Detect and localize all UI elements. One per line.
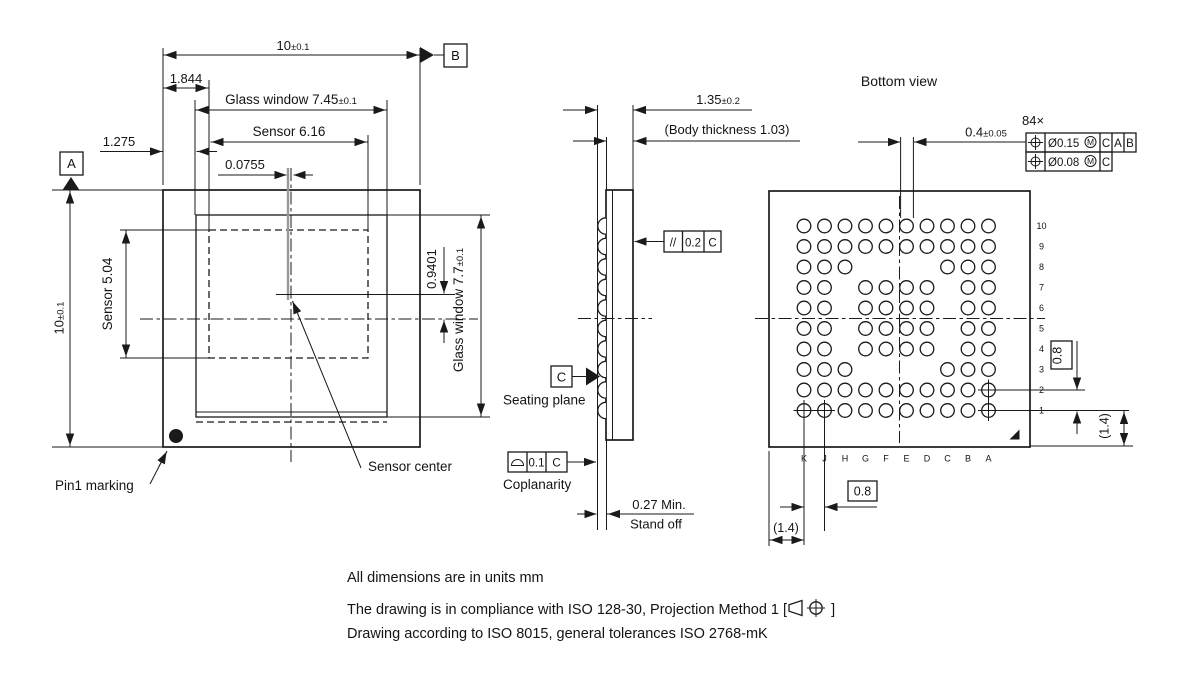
row-label-4: 4 <box>1039 344 1044 354</box>
ball-B2 <box>961 383 975 397</box>
dim-thickness: 1.35±0.2 <box>696 92 740 107</box>
parallelism-symbol: // <box>670 238 677 250</box>
row-label-7: 7 <box>1039 283 1044 293</box>
svg-text:0.2: 0.2 <box>685 238 701 250</box>
col-label-F: F <box>883 454 889 464</box>
standoff-label: Stand off <box>630 517 682 532</box>
ball-K6 <box>797 301 811 315</box>
row-label-5: 5 <box>1039 324 1044 334</box>
dim-top-width: 10±0.1 <box>277 38 310 53</box>
dim-ball-dia: 0.4±0.05 <box>965 125 1007 140</box>
ball-A10 <box>982 219 996 233</box>
dim-00755: 0.0755 <box>225 157 265 172</box>
first-angle-projection-icon <box>787 598 831 622</box>
ball-D6 <box>920 301 934 315</box>
datum-a-triangle <box>63 177 80 190</box>
col-label-C: C <box>944 454 951 464</box>
ball-J9 <box>818 240 832 254</box>
ball-B9 <box>961 240 975 254</box>
dim-col-pitch: 0.8 <box>854 485 871 499</box>
package-drawing: 10±0.1 B A 1.844 Glass window 7.45±0.1 S… <box>0 0 1200 675</box>
ball-F7 <box>879 281 893 295</box>
row-label-1: 1 <box>1039 406 1044 416</box>
col-label-K: K <box>801 454 807 464</box>
side-ball-4 <box>598 341 606 357</box>
dim-sensor-width: Sensor 6.16 <box>253 124 326 139</box>
surface-profile-icon <box>512 460 524 466</box>
pin1-label: Pin1 marking <box>55 478 134 493</box>
ball-G6 <box>859 301 873 315</box>
ball-J3 <box>818 363 832 377</box>
ball-D10 <box>920 219 934 233</box>
svg-text:A: A <box>1114 138 1122 150</box>
position-fcf-1: Ø0.15 M C A B <box>1026 133 1136 152</box>
ball-C2 <box>941 383 955 397</box>
side-ball-9 <box>598 238 606 254</box>
standoff-value: 0.27 Min. <box>632 497 685 512</box>
ball-B1 <box>961 404 975 418</box>
ball-G9 <box>859 240 873 254</box>
ball-B10 <box>961 219 975 233</box>
ball-D4 <box>920 342 934 356</box>
pin1-dot <box>169 429 183 443</box>
dim-col-edge: (1.4) <box>773 521 799 535</box>
ball-J2 <box>818 383 832 397</box>
ball-K4 <box>797 342 811 356</box>
side-ball-1 <box>598 402 606 418</box>
note-units: All dimensions are in units mm <box>347 570 544 586</box>
ball-H10 <box>838 219 852 233</box>
svg-text:B: B <box>1126 138 1134 150</box>
ball-D9 <box>920 240 934 254</box>
ball-H1 <box>838 404 852 418</box>
ball-H3 <box>838 363 852 377</box>
row-label-8: 8 <box>1039 262 1044 272</box>
ball-G10 <box>859 219 873 233</box>
ball-D5 <box>920 322 934 336</box>
col-label-J: J <box>822 454 827 464</box>
ball-F4 <box>879 342 893 356</box>
ball-E6 <box>900 301 914 315</box>
a1-corner-marker <box>1010 430 1020 440</box>
ball-F10 <box>879 219 893 233</box>
dim-glass-height: Glass window 7.7±0.1 <box>451 248 466 372</box>
ball-G7 <box>859 281 873 295</box>
dim-row-edge: (1.4) <box>1098 413 1112 439</box>
datum-b-label: B <box>451 48 460 63</box>
ball-F9 <box>879 240 893 254</box>
ball-K9 <box>797 240 811 254</box>
ball-K10 <box>797 219 811 233</box>
ball-E5 <box>900 322 914 336</box>
ball-H2 <box>838 383 852 397</box>
col-label-B: B <box>965 454 971 464</box>
ball-B7 <box>961 281 975 295</box>
row-label-10: 10 <box>1036 221 1046 231</box>
mmc-icon: M <box>1085 156 1096 167</box>
ball-B5 <box>961 322 975 336</box>
ball-A6 <box>982 301 996 315</box>
dim-body-thickness: (Body thickness 1.03) <box>664 122 789 137</box>
seating-plane-label: Seating plane <box>503 393 586 408</box>
dim-1844: 1.844 <box>170 71 203 86</box>
ball-A3 <box>982 363 996 377</box>
top-view: 10±0.1 B A 1.844 Glass window 7.45±0.1 S… <box>52 38 491 493</box>
side-ball-10 <box>598 218 606 234</box>
datum-c-label: C <box>557 370 566 385</box>
ball-E1 <box>900 404 914 418</box>
note-projection: The drawing is in compliance with ISO 12… <box>347 598 835 622</box>
svg-text:C: C <box>1102 157 1110 169</box>
ball-B3 <box>961 363 975 377</box>
ball-E4 <box>900 342 914 356</box>
side-view: 1.35±0.2 (Body thickness 1.03) // 0.2 C … <box>503 92 800 532</box>
ball-K7 <box>797 281 811 295</box>
ball-A5 <box>982 322 996 336</box>
col-label-G: G <box>862 454 869 464</box>
sensor-center-leader <box>293 301 362 468</box>
ball-K5 <box>797 322 811 336</box>
ball-J6 <box>818 301 832 315</box>
dim-1275: 1.275 <box>103 134 136 149</box>
col-label-D: D <box>924 454 931 464</box>
svg-text:0.1: 0.1 <box>529 458 545 470</box>
ball-B4 <box>961 342 975 356</box>
ball-G2 <box>859 383 873 397</box>
ball-E10 <box>900 219 914 233</box>
dim-glass-width: Glass window 7.45±0.1 <box>225 92 357 107</box>
ball-K2 <box>797 383 811 397</box>
ball-D2 <box>920 383 934 397</box>
position-fcf-2: Ø0.08 M C <box>1026 152 1112 171</box>
row-label-3: 3 <box>1039 365 1044 375</box>
ball-J5 <box>818 322 832 336</box>
position-icon <box>1028 154 1043 169</box>
dim-left-height: 10±0.1 <box>52 302 67 335</box>
col-label-A: A <box>985 454 991 464</box>
col-label-H: H <box>842 454 849 464</box>
side-ball-5 <box>598 320 606 336</box>
ball-D7 <box>920 281 934 295</box>
datum-b-triangle <box>420 47 434 63</box>
svg-text:C: C <box>708 238 716 250</box>
datum-a-label: A <box>67 156 76 171</box>
drawing-canvas: 10±0.1 B A 1.844 Glass window 7.45±0.1 S… <box>0 0 1200 675</box>
col-label-E: E <box>903 454 909 464</box>
ball-K8 <box>797 260 811 274</box>
ball-A4 <box>982 342 996 356</box>
position-icon <box>1028 135 1043 150</box>
side-body-outline <box>606 190 633 440</box>
ball-F5 <box>879 322 893 336</box>
ball-A7 <box>982 281 996 295</box>
side-ball-3 <box>598 361 606 377</box>
ball-G4 <box>859 342 873 356</box>
sensor-center-label: Sensor center <box>368 459 453 474</box>
ball-E2 <box>900 383 914 397</box>
side-ball-6 <box>598 300 606 316</box>
bottom-view-title: Bottom view <box>861 73 938 89</box>
ball-G5 <box>859 322 873 336</box>
coplanarity-label: Coplanarity <box>503 477 572 492</box>
mmc-icon: M <box>1085 137 1096 148</box>
ball-F1 <box>879 404 893 418</box>
svg-text:C: C <box>552 458 560 470</box>
ball-J4 <box>818 342 832 356</box>
ball-J7 <box>818 281 832 295</box>
ball-H9 <box>838 240 852 254</box>
ball-B8 <box>961 260 975 274</box>
ball-A9 <box>982 240 996 254</box>
ball-J10 <box>818 219 832 233</box>
ball-C8 <box>941 260 955 274</box>
ball-K3 <box>797 363 811 377</box>
ball-J8 <box>818 260 832 274</box>
note-tolerances: Drawing according to ISO 8015, general t… <box>347 626 768 642</box>
ball-C10 <box>941 219 955 233</box>
ball-B6 <box>961 301 975 315</box>
svg-text:Ø0.15: Ø0.15 <box>1048 138 1079 150</box>
dim-row-pitch: 0.8 <box>1051 347 1065 364</box>
column-labels: KJHGFEDCBA <box>801 454 992 464</box>
row-label-9: 9 <box>1039 242 1044 252</box>
ball-G1 <box>859 404 873 418</box>
bottom-view: Bottom view 0.4±0.05 84× Ø0.15 M <box>755 73 1136 546</box>
ball-C3 <box>941 363 955 377</box>
dim-sensor-height: Sensor 5.04 <box>100 257 115 330</box>
row-label-2: 2 <box>1039 385 1044 395</box>
ball-D1 <box>920 404 934 418</box>
ball-count: 84× <box>1022 113 1044 128</box>
row-label-6: 6 <box>1039 303 1044 313</box>
side-ball-7 <box>598 279 606 295</box>
ball-F6 <box>879 301 893 315</box>
svg-text:C: C <box>1102 138 1110 150</box>
svg-text:M: M <box>1087 137 1094 147</box>
ball-A8 <box>982 260 996 274</box>
dim-09401: 0.9401 <box>424 249 439 289</box>
svg-text:M: M <box>1087 156 1094 166</box>
ball-E7 <box>900 281 914 295</box>
side-ball-8 <box>598 259 606 275</box>
ball-C1 <box>941 404 955 418</box>
ball-E9 <box>900 240 914 254</box>
ball-F2 <box>879 383 893 397</box>
svg-text:Ø0.08: Ø0.08 <box>1048 157 1079 169</box>
ball-H8 <box>838 260 852 274</box>
side-ball-2 <box>598 382 606 398</box>
ball-C9 <box>941 240 955 254</box>
